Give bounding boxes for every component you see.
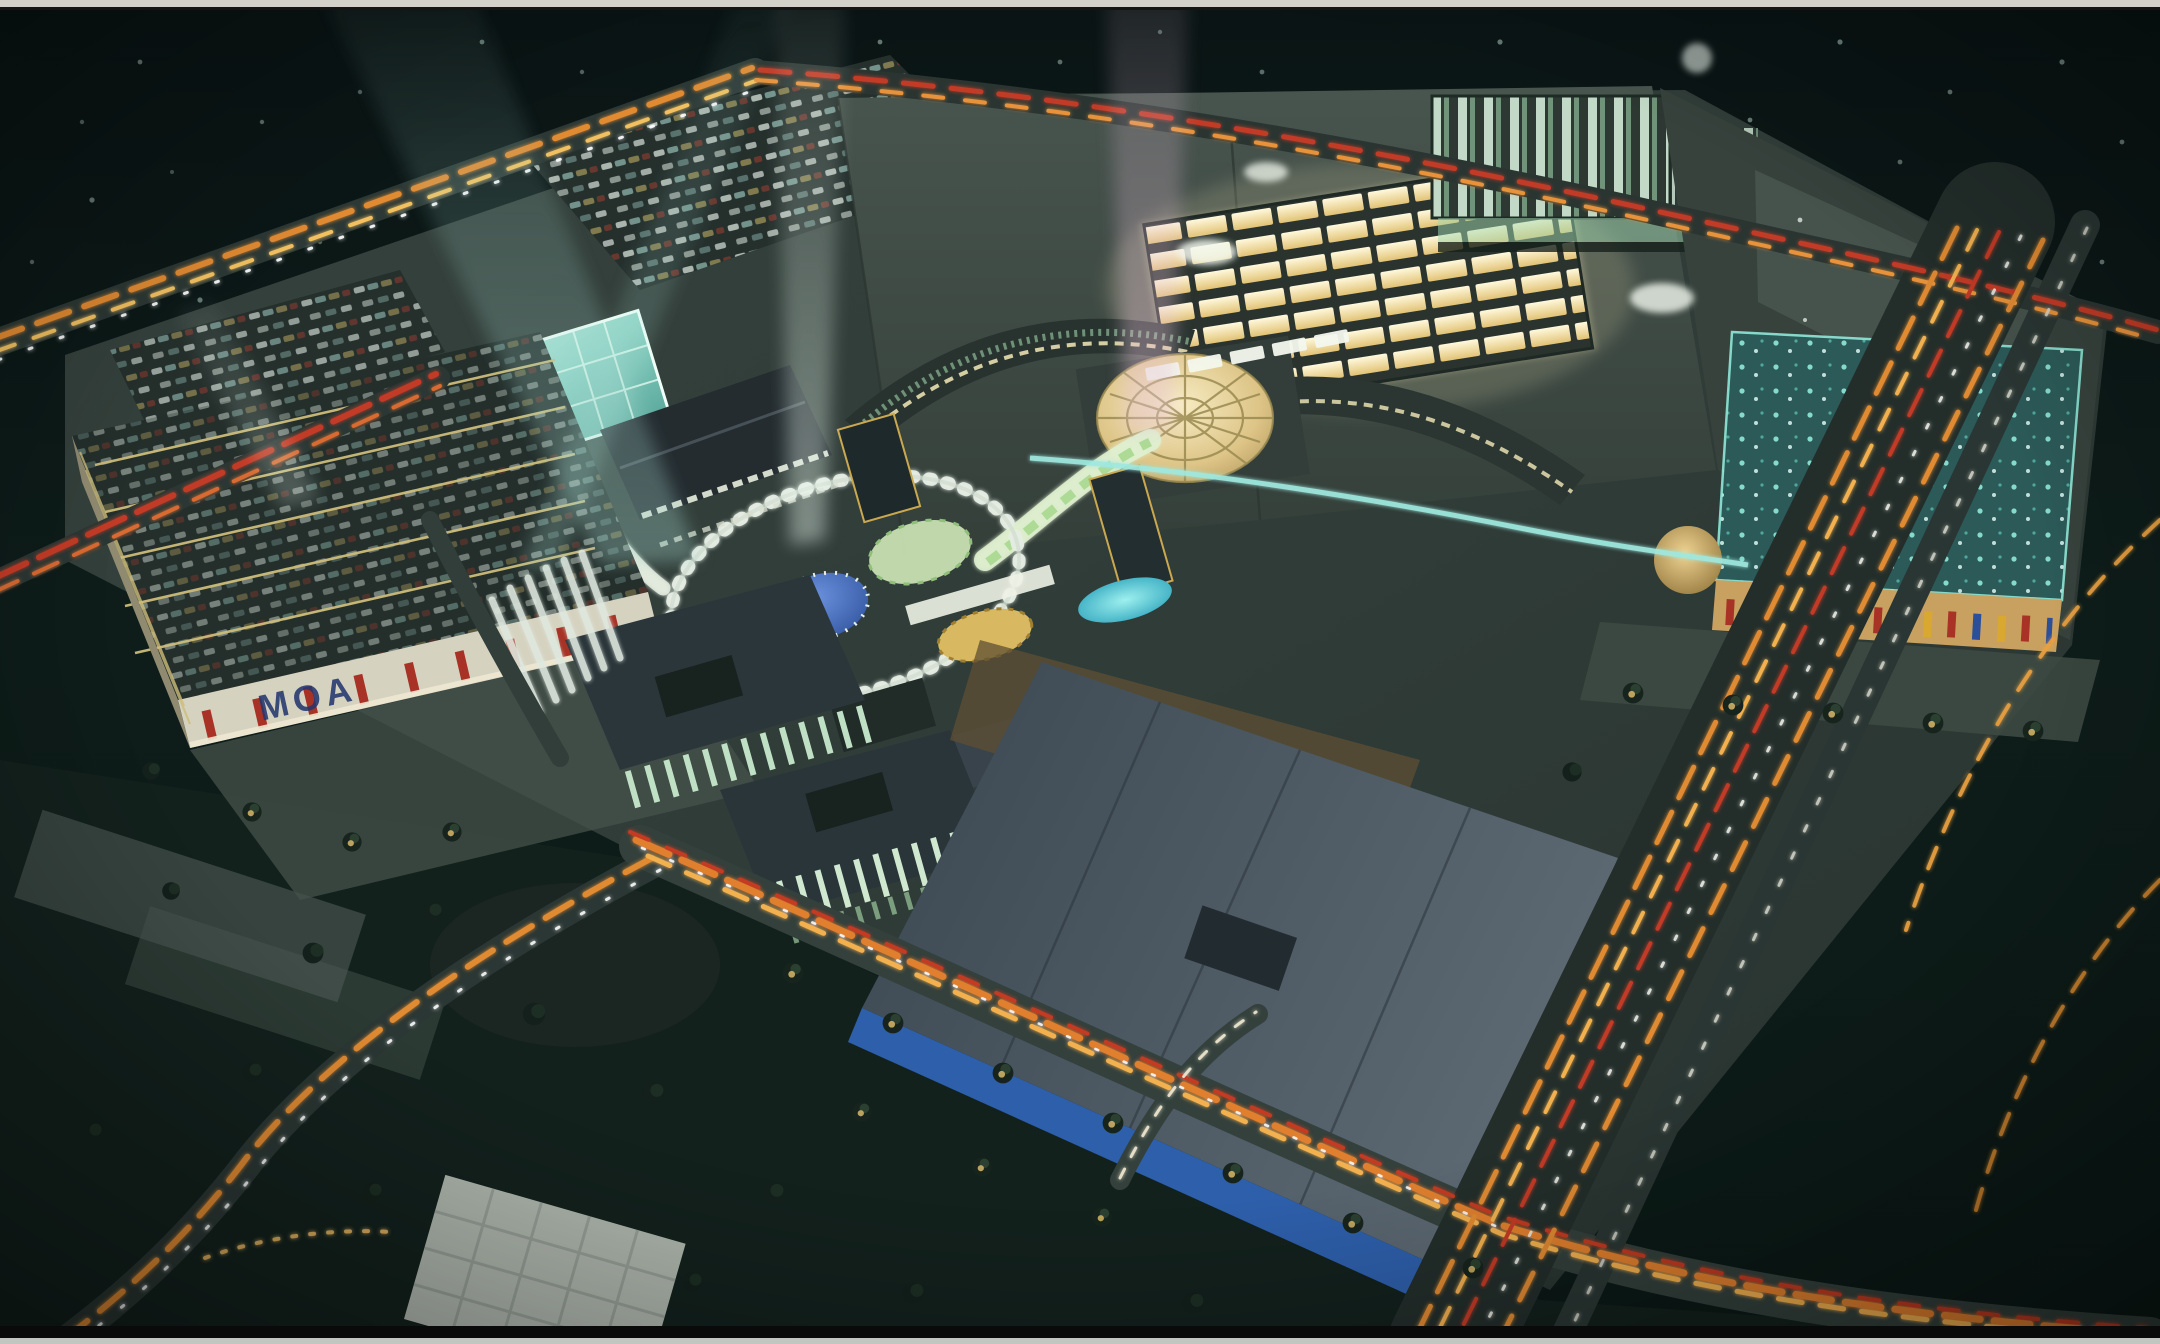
- aerial-night-rendering: MOA: [0, 0, 2160, 1344]
- frame-bottom-dark: [0, 1326, 2160, 1338]
- frame-top-light: [0, 0, 2160, 7]
- vignette: [0, 0, 2160, 1344]
- frame-bottom-light: [0, 1338, 2160, 1344]
- frame-top-dark: [0, 7, 2160, 10]
